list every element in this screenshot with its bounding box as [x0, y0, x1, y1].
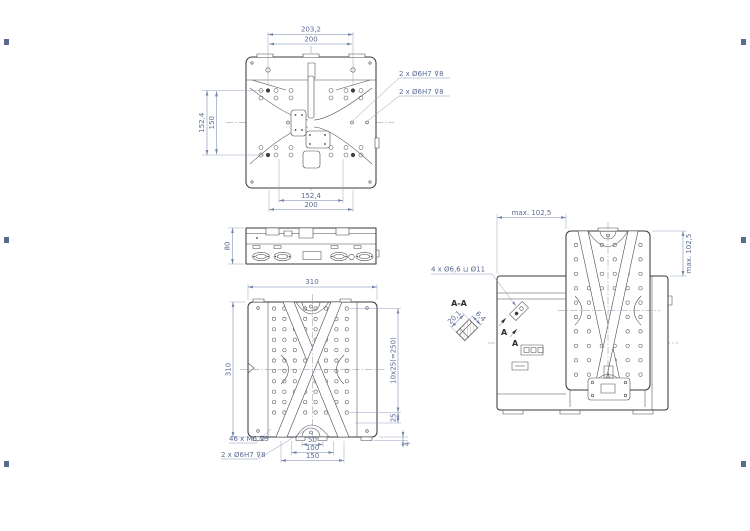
view-top: 203,2 200 152,4 150 152,4 200 2 x Ø6H7 ⊽…: [198, 26, 450, 213]
view-displaced: A A max. 102,5 max. 102,5 4 x Ø6,6 ⊔ Ø11: [431, 209, 693, 414]
dim-25: 25: [390, 413, 398, 422]
label-cbore: 4 x Ø6,6 ⊔ Ø11: [431, 266, 485, 274]
section-dim-length: 20,1: [446, 309, 463, 326]
section-marker-a1: A: [501, 328, 508, 337]
section-aa: A-A 20,1 6,4: [445, 299, 487, 341]
section-body: [456, 319, 477, 340]
label-m6: 46 x M6 ⊽9: [229, 435, 269, 443]
view-bottom: 310 310 10x25(=250) 25 4 50 100 150 46 x…: [221, 278, 412, 463]
drawing-canvas: 203,2 200 152,4 150 152,4 200 2 x Ø6H7 ⊽…: [0, 0, 750, 531]
label-dowel-upper: 2 x Ø6H7 ⊽8: [399, 70, 444, 78]
dim-50: 50: [308, 436, 317, 444]
label-dowel-bottom: 2 x Ø6H7 ⊽8: [221, 451, 266, 459]
label-dowel-lower: 2 x Ø6H7 ⊽8: [399, 88, 444, 96]
dim-203-2: 203,2: [301, 26, 321, 34]
dim-80: 80: [224, 242, 232, 251]
dim-152-4-bottom: 152,4: [301, 192, 322, 200]
section-marker-a2: A: [512, 339, 519, 348]
dim-100: 100: [306, 444, 319, 452]
section-dim-depth: 6,4: [474, 310, 488, 324]
dim-travel-horizontal: max. 102,5: [512, 209, 552, 217]
dim-200-bottom: 200: [304, 201, 317, 209]
dim-200-top: 200: [304, 36, 317, 44]
dim-travel-vertical: max. 102,5: [685, 234, 693, 274]
dim-150: 150: [306, 452, 319, 460]
section-title: A-A: [451, 299, 468, 308]
limit-switch-block: [291, 110, 306, 136]
technical-drawing: 203,2 200 152,4 150 152,4 200 2 x Ø6H7 ⊽…: [0, 0, 750, 531]
dim-152-4-left: 152,4: [198, 112, 206, 133]
dim-hole-pitch: 10x25(=250): [390, 337, 398, 384]
dim-310-width: 310: [305, 278, 318, 286]
view-side: 80: [224, 228, 380, 264]
motor-block: [588, 378, 630, 400]
dim-pad-4: 4: [404, 441, 412, 446]
dim-310-height: 310: [225, 363, 233, 376]
dim-150-left: 150: [208, 116, 216, 129]
